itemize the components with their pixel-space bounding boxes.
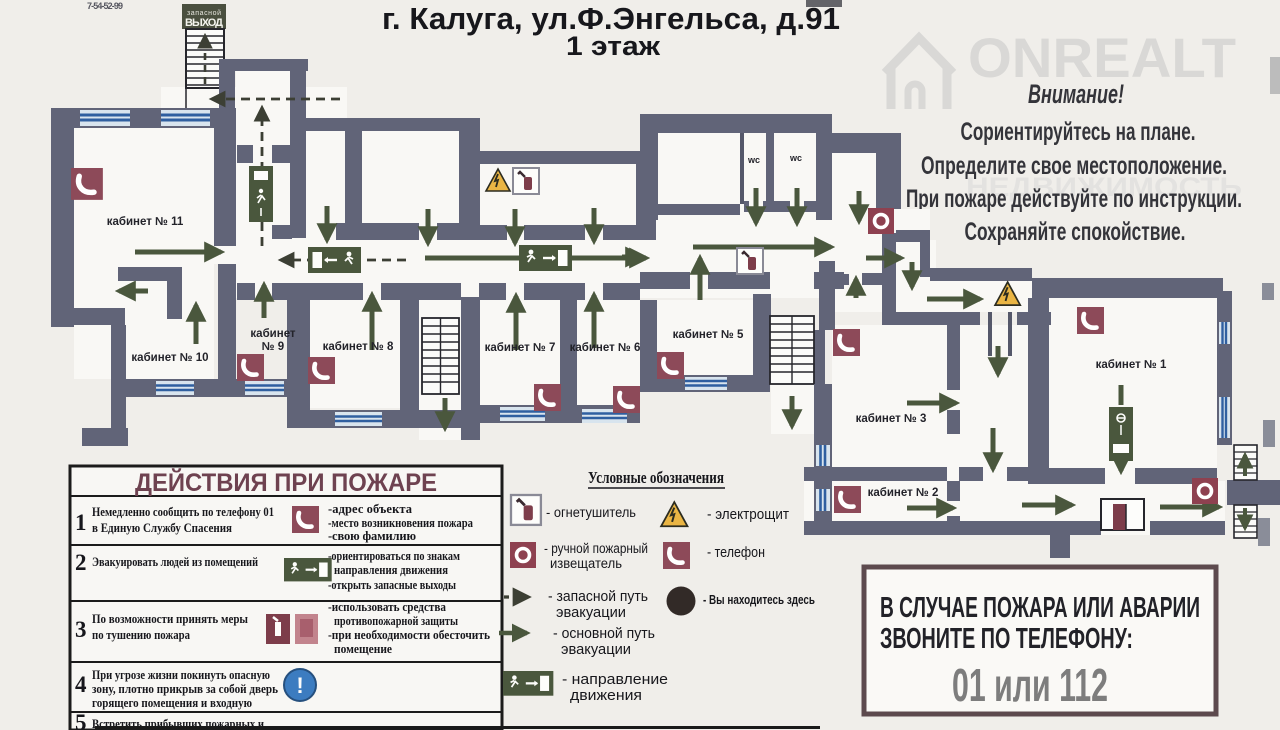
svg-text:- направление: - направление (562, 672, 668, 688)
svg-text:3: 3 (75, 617, 87, 642)
svg-text:01 или 112: 01 или 112 (952, 659, 1108, 711)
svg-text:горящего помещения и входную: горящего помещения и входную (92, 695, 252, 710)
svg-text:№ 9: № 9 (262, 341, 284, 353)
svg-text:Немедленно сообщить по телефон: Немедленно сообщить по телефону 01 (92, 504, 274, 519)
svg-text:wc: wc (747, 155, 760, 165)
svg-text:По возможности принять меры: По возможности принять меры (92, 611, 248, 626)
svg-text:Сохраняйте спокойствие.: Сохраняйте спокойствие. (965, 218, 1186, 246)
svg-text:ЗВОНИТЕ ПО ТЕЛЕФОНУ:: ЗВОНИТЕ ПО ТЕЛЕФОНУ: (880, 623, 1133, 655)
svg-text:кабинет № 5: кабинет № 5 (673, 329, 744, 341)
svg-text:При пожаре действуйте по инстр: При пожаре действуйте по инструкции. (906, 185, 1242, 213)
svg-text:ВЫХОД: ВЫХОД (185, 17, 223, 29)
svg-text:- запасной путь: - запасной путь (548, 589, 648, 605)
svg-text:!: ! (296, 673, 303, 698)
svg-text:-место возникновения пожара: -место возникновения пожара (328, 516, 474, 530)
svg-text:Условные обозначения: Условные обозначения (588, 468, 724, 487)
svg-text:кабинет № 7: кабинет № 7 (485, 342, 556, 354)
svg-text:кабинет № 2: кабинет № 2 (868, 487, 939, 499)
svg-text:7-54-52-99: 7-54-52-99 (87, 1, 123, 11)
svg-text:- электрощит: - электрощит (707, 507, 789, 523)
svg-text:2: 2 (75, 550, 87, 575)
svg-text:ДЕЙСТВИЯ ПРИ ПОЖАРЕ: ДЕЙСТВИЯ ПРИ ПОЖАРЕ (135, 467, 437, 497)
svg-text:- Вы находитесь здесь: - Вы находитесь здесь (703, 593, 815, 607)
svg-text:Внимание!: Внимание! (1028, 79, 1124, 109)
svg-text:Определите свое местоположение: Определите свое местоположение. (921, 152, 1227, 180)
svg-text:-открыть запасные выходы: -открыть запасные выходы (328, 578, 456, 592)
svg-text:кабинет № 10: кабинет № 10 (131, 352, 208, 364)
svg-text:5: 5 (75, 710, 87, 730)
svg-text:запасной: запасной (187, 9, 221, 17)
svg-text:эвакуации: эвакуации (556, 605, 626, 621)
svg-text:1: 1 (75, 510, 87, 535)
svg-text:Сориентируйтесь на плане.: Сориентируйтесь на плане. (961, 118, 1196, 146)
svg-text:wc: wc (789, 153, 802, 163)
svg-text:- огнетушитель: - огнетушитель (546, 505, 636, 520)
svg-text:кабинет № 11: кабинет № 11 (107, 216, 184, 228)
svg-text:движения: движения (570, 688, 642, 704)
svg-text:-при необходимости обесточить: -при необходимости обесточить (328, 628, 490, 642)
svg-text:-использовать средства: -использовать средства (328, 600, 447, 614)
svg-text:по тушению пожара: по тушению пожара (92, 627, 190, 642)
svg-text:- телефон: - телефон (707, 545, 765, 561)
svg-text:-свою фамилию: -свою фамилию (328, 529, 416, 543)
svg-text:4: 4 (75, 672, 87, 697)
svg-text:помещение: помещение (334, 642, 392, 656)
svg-text:При угрозе жизни покинуть опас: При угрозе жизни покинуть опасную (92, 667, 270, 682)
svg-text:эвакуации: эвакуации (561, 642, 631, 658)
svg-text:направления движения: направления движения (334, 563, 448, 577)
svg-text:кабинет № 6: кабинет № 6 (570, 342, 641, 354)
svg-text:зону, плотно прикрыв за собой: зону, плотно прикрыв за собой дверь (92, 681, 278, 696)
svg-text:- основной путь: - основной путь (553, 626, 655, 642)
svg-text:- ручной пожарный: - ручной пожарный (544, 541, 648, 556)
svg-text:кабинет: кабинет (250, 328, 296, 340)
svg-text:извещатель: извещатель (550, 556, 622, 571)
svg-text:кабинет № 1: кабинет № 1 (1096, 359, 1167, 371)
svg-text:Эвакуировать людей из помещени: Эвакуировать людей из помещений (92, 554, 258, 569)
svg-text:кабинет № 3: кабинет № 3 (856, 413, 927, 425)
svg-text:кабинет № 8: кабинет № 8 (323, 341, 394, 353)
svg-text:противопожарной защиты: противопожарной защиты (334, 614, 458, 628)
svg-text:В СЛУЧАЕ ПОЖАРА ИЛИ АВАРИИ: В СЛУЧАЕ ПОЖАРА ИЛИ АВАРИИ (880, 592, 1200, 624)
svg-text:-адрес объекта: -адрес объекта (328, 502, 413, 516)
svg-text:-ориентироваться по знакам: -ориентироваться по знакам (328, 549, 460, 563)
svg-text:1 этаж: 1 этаж (566, 31, 661, 61)
svg-text:в Единую Службу Спасения: в Единую Службу Спасения (92, 520, 232, 535)
